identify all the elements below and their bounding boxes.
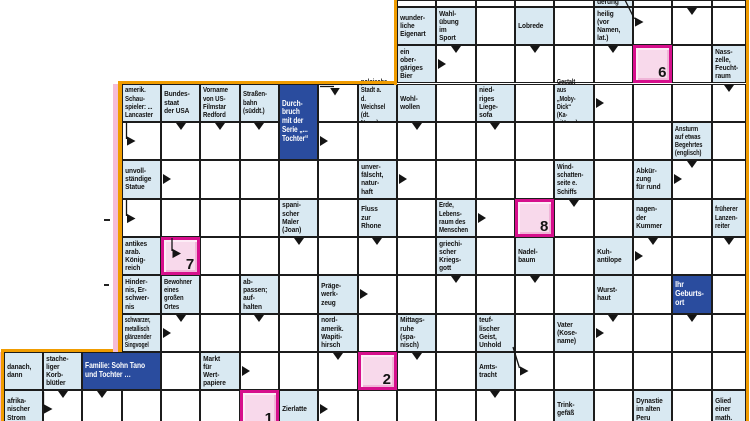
clue-cell-r11-c14: Trink- gefäß bbox=[554, 390, 593, 421]
clue-cell-r9-c12: teuf- lischer Geist, Unhold bbox=[476, 314, 515, 352]
right-arrow-icon bbox=[596, 98, 604, 108]
clue-text: derung bbox=[595, 0, 619, 6]
down-arrow-icon bbox=[412, 123, 422, 130]
clue-cell-r9-c8: nord- amerik. Wapiti- hirsch bbox=[318, 314, 357, 352]
answer-cell-r3-c13[interactable] bbox=[515, 84, 554, 122]
right-arrow-icon bbox=[674, 174, 682, 184]
answer-cell-r4-c10[interactable] bbox=[397, 122, 436, 160]
clue-cell-r6-c11: Erde, Lebens- raum des Menschen bbox=[436, 199, 475, 237]
down-arrow-icon bbox=[412, 353, 422, 360]
answer-cell-r2-c12[interactable] bbox=[476, 45, 515, 83]
right-arrow-icon bbox=[635, 251, 643, 261]
answer-cell-r5-c12[interactable] bbox=[476, 160, 515, 198]
right-arrow-icon bbox=[438, 59, 446, 69]
answer-cell-r3-c8[interactable] bbox=[318, 84, 357, 122]
down-arrow-icon bbox=[490, 123, 500, 130]
clue-cell-r8-c15: Wurst- haut bbox=[594, 275, 633, 313]
down-arrow-icon bbox=[648, 238, 658, 245]
clue-cell-r3-c3: amerik. Schau- spieler: ... Lancaster bbox=[122, 84, 161, 122]
down-arrow-icon bbox=[254, 123, 264, 130]
answer-cell-r6-c15[interactable] bbox=[594, 199, 633, 237]
pink-strip-lower-left bbox=[0, 352, 1, 421]
clue-cell-r11-c0: afrika- nischer Strom bbox=[4, 390, 43, 421]
answer-cell-r9-c16[interactable] bbox=[633, 314, 672, 352]
solution-cell-r2-c16[interactable]: 6 bbox=[633, 45, 672, 83]
right-arrow-icon bbox=[478, 213, 486, 223]
solution-cell-r6-c13[interactable]: 8 bbox=[515, 199, 554, 237]
clue-text: Mittags- ruhe (spa- nisch) bbox=[398, 316, 424, 349]
answer-cell-r10-c15[interactable] bbox=[594, 352, 633, 390]
clue-cell-r10-c12: Amts- tracht bbox=[476, 352, 515, 390]
clue-text: Straßen- bahn (süddt.) bbox=[241, 90, 267, 114]
clue-text: Dynastie im alten Peru bbox=[634, 397, 663, 421]
answer-cell-r11-c9[interactable] bbox=[358, 390, 397, 421]
down-arrow-icon bbox=[97, 391, 107, 398]
grid-outline-orange-lower-left bbox=[1, 349, 4, 421]
clue-cell-r2-c18: Nass- zelle, Feucht- raum bbox=[712, 45, 746, 83]
clue-cell-r3-c6: Straßen- bahn (süddt.) bbox=[240, 84, 279, 122]
down-arrow-icon bbox=[372, 238, 382, 245]
clue-text: Durch- bruch mit der Serie „... Tochter“ bbox=[280, 100, 308, 145]
clue-text: früherer Lanzen- reiter bbox=[713, 205, 738, 229]
grid-outline-orange-right bbox=[746, 0, 749, 421]
clue-text: Vater (Kose- name) bbox=[555, 321, 577, 345]
answer-cell-r9-c7[interactable] bbox=[279, 314, 318, 352]
clue-text: Markt für Wert- papiere bbox=[201, 355, 226, 388]
clue-cell-r10-c0: danach, dann bbox=[4, 352, 43, 390]
answer-cell-r5-c10[interactable] bbox=[397, 160, 436, 198]
answer-cell-r8-c9[interactable] bbox=[358, 275, 397, 313]
down-arrow-icon bbox=[490, 391, 500, 398]
answer-cell-r11-c13[interactable] bbox=[515, 390, 554, 421]
clue-cell-r9-c14: Vater (Kose- name) bbox=[554, 314, 593, 352]
stray-mark bbox=[104, 219, 110, 221]
solution-number: 7 bbox=[186, 257, 194, 272]
answer-cell-r7-c18[interactable] bbox=[712, 237, 746, 275]
grid-outline-orange-mid-left bbox=[118, 81, 121, 353]
answer-cell-r10-c7[interactable] bbox=[279, 352, 318, 390]
clue-cell-r3-c9: polnische Stadt a. d. Weichsel (dt. Name… bbox=[358, 84, 397, 122]
answer-cell-r4-c3[interactable] bbox=[122, 122, 161, 160]
clue-cell-r10-c5: Markt für Wert- papiere bbox=[200, 352, 239, 390]
grid-outline-orange-upper-left bbox=[394, 0, 397, 85]
clue-cell-r3-c10: Wohl- wollen bbox=[397, 84, 436, 122]
answer-cell-r4-c14[interactable] bbox=[554, 122, 593, 160]
answer-cell-r11-c17[interactable] bbox=[672, 390, 711, 421]
clue-text: Wind- schatten- seite e. Schiffs bbox=[555, 163, 583, 196]
answer-cell-r6-c8[interactable] bbox=[318, 199, 357, 237]
answer-cell-r11-c11[interactable] bbox=[436, 390, 475, 421]
answer-cell-r10-c17[interactable] bbox=[672, 352, 711, 390]
answer-cell-r4-c8[interactable] bbox=[318, 122, 357, 160]
clue-text: afrika- nischer Strom bbox=[5, 397, 30, 421]
down-arrow-icon bbox=[176, 315, 186, 322]
answer-cell-r2-c13[interactable] bbox=[515, 45, 554, 83]
answer-cell-r10-c11[interactable] bbox=[436, 352, 475, 390]
answer-cell-r10-c18[interactable] bbox=[712, 352, 746, 390]
answer-cell-r3-c16[interactable] bbox=[633, 84, 672, 122]
answer-cell-r4-c12[interactable] bbox=[476, 122, 515, 160]
answer-cell-r9-c17[interactable] bbox=[672, 314, 711, 352]
blue-clue-cell-r10-c2: Familie: Sohn Tano und Tochter … bbox=[82, 352, 161, 390]
answer-cell-r7-c6[interactable] bbox=[240, 237, 279, 275]
answer-cell-r4-c15[interactable] bbox=[594, 122, 633, 160]
answer-cell-r8-c12[interactable] bbox=[476, 275, 515, 313]
clue-text: Hinder- nis, Er- schwer- nis bbox=[123, 278, 149, 311]
answer-cell-r11-c8[interactable] bbox=[318, 390, 357, 421]
clue-cell-r7-c11: griechi- scher Kriegs- gott bbox=[436, 237, 475, 275]
solution-number: 8 bbox=[540, 219, 548, 234]
answer-cell-r6-c3[interactable] bbox=[122, 199, 161, 237]
down-arrow-icon bbox=[687, 161, 697, 168]
clue-cell-r10-c1: stache- liger Korb- blütler bbox=[43, 352, 82, 390]
answer-cell-r4-c18[interactable] bbox=[712, 122, 746, 160]
clue-cell-r5-c3: unvoll- ständige Statue bbox=[122, 160, 161, 198]
answer-cell-r9-c13[interactable] bbox=[515, 314, 554, 352]
down-arrow-icon bbox=[451, 276, 461, 283]
right-arrow-icon bbox=[163, 174, 171, 184]
stray-mark bbox=[104, 284, 110, 286]
answer-cell-r5-c18[interactable] bbox=[712, 160, 746, 198]
answer-cell-r8-c16[interactable] bbox=[633, 275, 672, 313]
answer-cell-r10-c8[interactable] bbox=[318, 352, 357, 390]
answer-cell-r0-c11[interactable] bbox=[436, 0, 475, 7]
down-arrow-icon bbox=[530, 276, 540, 283]
clue-cell-r9-c3: schwarzer, metallisch glänzender Singvog… bbox=[122, 314, 161, 352]
solution-number: 1 bbox=[265, 411, 273, 421]
answer-cell-r7-c14[interactable] bbox=[554, 237, 593, 275]
clue-text: Bewohner eines großen Ortes bbox=[162, 278, 192, 311]
clue-cell-r3-c14: Gestalt aus „Moby- Dick“ (Ka- pitän ...) bbox=[554, 84, 593, 122]
answer-cell-r7-c16[interactable] bbox=[633, 237, 672, 275]
clue-cell-r6-c18: früherer Lanzen- reiter bbox=[712, 199, 746, 237]
clue-text: Fluss zur Rhone bbox=[359, 205, 381, 229]
clue-cell-r6-c9: Fluss zur Rhone bbox=[358, 199, 397, 237]
clue-cell-r5-c16: Abkür- zung für rund bbox=[633, 160, 672, 198]
clue-text: nied- riges Liege- sofa bbox=[477, 86, 498, 119]
crossword-grid: derungwunder- liche EigenartWahl- übung … bbox=[0, 0, 750, 421]
answer-cell-r7-c10[interactable] bbox=[397, 237, 436, 275]
clue-cell-r1-c10: wunder- liche Eigenart bbox=[397, 7, 436, 45]
answer-cell-r7-c12[interactable] bbox=[476, 237, 515, 275]
clue-cell-r6-c16: nagen- der Kummer bbox=[633, 199, 672, 237]
answer-cell-r4-c16[interactable] bbox=[633, 122, 672, 160]
clue-text: ab- passen; auf- halten bbox=[241, 278, 267, 311]
answer-cell-r9-c9[interactable] bbox=[358, 314, 397, 352]
clue-cell-r1-c13: Lobrede bbox=[515, 7, 554, 45]
answer-cell-r6-c12[interactable] bbox=[476, 199, 515, 237]
answer-cell-r8-c18[interactable] bbox=[712, 275, 746, 313]
solution-cell-r10-c9[interactable]: 2 bbox=[358, 352, 397, 390]
right-arrow-icon bbox=[399, 174, 407, 184]
clue-cell-r7-c13: Nadel- baum bbox=[515, 237, 554, 275]
clue-cell-r11-c16: Dynastie im alten Peru bbox=[633, 390, 672, 421]
down-arrow-icon bbox=[333, 353, 343, 360]
answer-cell-r6-c4[interactable] bbox=[161, 199, 200, 237]
clue-text: unver- fälscht, natur- haft bbox=[359, 163, 383, 196]
clue-cell-r4-c17: Ansturm auf etwas Begehrtes (englisch) bbox=[672, 122, 711, 160]
clue-text: nagen- der Kummer bbox=[634, 205, 662, 229]
answer-cell-r4-c9[interactable] bbox=[358, 122, 397, 160]
down-arrow-icon bbox=[687, 8, 697, 15]
clue-text: unvoll- ständige Statue bbox=[123, 167, 151, 191]
answer-cell-r10-c13[interactable] bbox=[515, 352, 554, 390]
clue-text: Zierlatte bbox=[280, 405, 307, 413]
clue-text: teuf- lischer Geist, Unhold bbox=[477, 316, 501, 349]
answer-cell-r4-c13[interactable] bbox=[515, 122, 554, 160]
answer-cell-r4-c4[interactable] bbox=[161, 122, 200, 160]
down-arrow-icon bbox=[608, 315, 618, 322]
answer-cell-r7-c8[interactable] bbox=[318, 237, 357, 275]
clue-cell-r3-c5: Vorname von US- Filmstar Redford bbox=[200, 84, 239, 122]
answer-cell-r7-c9[interactable] bbox=[358, 237, 397, 275]
clue-text: Kuh- antilope bbox=[595, 248, 621, 264]
clue-cell-r6-c7: spani- scher Maler (Joan) bbox=[279, 199, 318, 237]
answer-cell-r5-c4[interactable] bbox=[161, 160, 200, 198]
clue-text: schwarzer, metallisch glänzender Singvog… bbox=[123, 316, 151, 349]
clue-cell-r1-c15: heilig (vor Namen, lat.) bbox=[594, 7, 633, 45]
grid-outline-orange-step-top bbox=[118, 81, 397, 84]
solution-cell-r7-c4[interactable]: 7 bbox=[161, 237, 200, 275]
solution-number: 2 bbox=[383, 372, 391, 387]
answer-cell-r8-c13[interactable] bbox=[515, 275, 554, 313]
pink-strip-left bbox=[113, 84, 118, 353]
answer-cell-r4-c5[interactable] bbox=[200, 122, 239, 160]
answer-cell-r6-c5[interactable] bbox=[200, 199, 239, 237]
answer-cell-r3-c11[interactable] bbox=[436, 84, 475, 122]
blue-clue-cell-r8-c17: Ihr Geburts- ort bbox=[672, 275, 711, 313]
clue-text: stache- liger Korb- blütler bbox=[44, 355, 68, 388]
clue-cell-r11-c18: Glied einer math. bbox=[712, 390, 746, 421]
down-arrow-icon bbox=[254, 315, 264, 322]
answer-cell-r9-c5[interactable] bbox=[200, 314, 239, 352]
answer-cell-r2-c17[interactable] bbox=[672, 45, 711, 83]
answer-cell-r3-c15[interactable] bbox=[594, 84, 633, 122]
answer-cell-r5-c5[interactable] bbox=[200, 160, 239, 198]
answer-cell-r0-c12[interactable] bbox=[476, 0, 515, 7]
clue-text: Abkür- zung für rund bbox=[634, 167, 660, 191]
down-arrow-icon bbox=[687, 315, 697, 322]
clue-text: ein ober- gäriges Bier bbox=[398, 48, 423, 81]
right-arrow-icon bbox=[320, 136, 328, 146]
down-arrow-icon bbox=[294, 238, 304, 245]
answer-cell-r10-c4[interactable] bbox=[161, 352, 200, 390]
clue-cell-r1-c11: Wahl- übung im Sport bbox=[436, 7, 475, 45]
answer-cell-r8-c11[interactable] bbox=[436, 275, 475, 313]
clue-cell-r8-c8: Präge- werk- zeug bbox=[318, 275, 357, 313]
down-arrow-icon bbox=[724, 85, 734, 92]
answer-cell-r11-c15[interactable] bbox=[594, 390, 633, 421]
answer-cell-r4-c6[interactable] bbox=[240, 122, 279, 160]
answer-cell-r0-c13[interactable] bbox=[515, 0, 554, 7]
answer-cell-r8-c7[interactable] bbox=[279, 275, 318, 313]
answer-cell-r6-c17[interactable] bbox=[672, 199, 711, 237]
clue-cell-r5-c14: Wind- schatten- seite e. Schiffs bbox=[554, 160, 593, 198]
clue-text: amerik. Schau- spieler: ... Lancaster bbox=[123, 86, 153, 119]
clue-text: danach, dann bbox=[5, 363, 31, 379]
answer-cell-r1-c12[interactable] bbox=[476, 7, 515, 45]
down-arrow-icon bbox=[724, 238, 734, 245]
clue-text: Nadel- baum bbox=[516, 248, 538, 264]
clue-text: Glied einer math. bbox=[713, 397, 732, 421]
clue-cell-r2-c10: ein ober- gäriges Bier bbox=[397, 45, 436, 83]
clue-text: Gestalt aus „Moby- Dick“ (Ka- pitän ...) bbox=[555, 78, 582, 127]
answer-cell-r1-c18[interactable] bbox=[712, 7, 746, 45]
clue-text: polnische Stadt a. d. Weichsel (dt. Name… bbox=[359, 78, 387, 127]
clue-text: Ansturm auf etwas Begehrtes (englisch) bbox=[673, 125, 702, 158]
clue-cell-r8-c3: Hinder- nis, Er- schwer- nis bbox=[122, 275, 161, 313]
answer-cell-r9-c18[interactable] bbox=[712, 314, 746, 352]
answer-cell-r8-c5[interactable] bbox=[200, 275, 239, 313]
right-arrow-icon bbox=[360, 289, 368, 299]
right-arrow-icon bbox=[596, 328, 604, 338]
answer-cell-r8-c10[interactable] bbox=[397, 275, 436, 313]
answer-cell-r11-c10[interactable] bbox=[397, 390, 436, 421]
answer-cell-r0-c14[interactable] bbox=[554, 0, 593, 7]
down-arrow-icon bbox=[530, 46, 540, 53]
clue-text: Vorname von US- Filmstar Redford bbox=[201, 86, 228, 119]
answer-cell-r0-c16[interactable] bbox=[633, 0, 672, 7]
clue-cell-r5-c9: unver- fälscht, natur- haft bbox=[358, 160, 397, 198]
clue-text: wunder- liche Eigenart bbox=[398, 14, 426, 38]
answer-cell-r9-c11[interactable] bbox=[436, 314, 475, 352]
answer-cell-r11-c5[interactable] bbox=[200, 390, 239, 421]
clue-text: nord- amerik. Wapiti- hirsch bbox=[319, 316, 343, 349]
answer-cell-r6-c14[interactable] bbox=[554, 199, 593, 237]
clue-text: Trink- gefäß bbox=[555, 401, 574, 417]
answer-cell-r6-c10[interactable] bbox=[397, 199, 436, 237]
answer-cell-r7-c5[interactable] bbox=[200, 237, 239, 275]
answer-cell-r10-c16[interactable] bbox=[633, 352, 672, 390]
clue-text: heilig (vor Namen, lat.) bbox=[595, 10, 620, 43]
clue-text: Bundes- staat der USA bbox=[162, 90, 190, 114]
answer-cell-r0-c10[interactable] bbox=[397, 0, 436, 7]
answer-cell-r5-c15[interactable] bbox=[594, 160, 633, 198]
answer-cell-r3-c18[interactable] bbox=[712, 84, 746, 122]
clue-cell-r7-c15: Kuh- antilope bbox=[594, 237, 633, 275]
clue-cell-r3-c12: nied- riges Liege- sofa bbox=[476, 84, 515, 122]
down-arrow-icon bbox=[58, 391, 68, 398]
answer-cell-r1-c17[interactable] bbox=[672, 7, 711, 45]
answer-cell-r4-c11[interactable] bbox=[436, 122, 475, 160]
answer-cell-r10-c10[interactable] bbox=[397, 352, 436, 390]
right-arrow-icon bbox=[163, 328, 171, 338]
answer-cell-r1-c16[interactable] bbox=[633, 7, 672, 45]
down-arrow-icon bbox=[451, 46, 461, 53]
clue-text: Wohl- wollen bbox=[398, 95, 420, 111]
clue-text: Nass- zelle, Feucht- raum bbox=[713, 48, 738, 81]
answer-cell-r2-c11[interactable] bbox=[436, 45, 475, 83]
answer-cell-r7-c7[interactable] bbox=[279, 237, 318, 275]
answer-cell-r0-c17[interactable] bbox=[672, 0, 711, 7]
clue-cell-r0-c15: derung bbox=[594, 0, 633, 7]
answer-cell-r0-c18[interactable] bbox=[712, 0, 746, 7]
answer-cell-r5-c17[interactable] bbox=[672, 160, 711, 198]
clue-cell-r8-c6: ab- passen; auf- halten bbox=[240, 275, 279, 313]
grid-outline-orange-step-low bbox=[1, 349, 121, 352]
clue-cell-r9-c10: Mittags- ruhe (spa- nisch) bbox=[397, 314, 436, 352]
clue-text: griechi- scher Kriegs- gott bbox=[437, 240, 462, 273]
answer-cell-r5-c8[interactable] bbox=[318, 160, 357, 198]
blue-clue-cell-r3-c7: Durch- bruch mit der Serie „... Tochter“ bbox=[279, 84, 318, 161]
clue-text: Lobrede bbox=[516, 22, 543, 30]
right-arrow-icon bbox=[320, 404, 328, 414]
down-arrow-icon bbox=[608, 46, 618, 53]
clue-text: antikes arab. König- reich bbox=[123, 240, 147, 273]
answer-cell-r5-c6[interactable] bbox=[240, 160, 279, 198]
clue-text: Wahl- übung im Sport bbox=[437, 10, 459, 43]
answer-cell-r2-c15[interactable] bbox=[594, 45, 633, 83]
clue-text: Ihr Geburts- ort bbox=[673, 281, 704, 308]
answer-cell-r10-c6[interactable] bbox=[240, 352, 279, 390]
answer-cell-r6-c6[interactable] bbox=[240, 199, 279, 237]
down-arrow-icon bbox=[176, 123, 186, 130]
answer-cell-r5-c11[interactable] bbox=[436, 160, 475, 198]
right-arrow-icon bbox=[242, 366, 250, 376]
clue-text: Familie: Sohn Tano und Tochter … bbox=[83, 362, 145, 380]
down-arrow-icon bbox=[569, 200, 579, 207]
answer-cell-r1-c14[interactable] bbox=[554, 7, 593, 45]
answer-cell-r11-c1[interactable] bbox=[43, 390, 82, 421]
clue-text: Amts- tracht bbox=[477, 363, 497, 379]
answer-cell-r5-c13[interactable] bbox=[515, 160, 554, 198]
clue-cell-r11-c7: Zierlatte bbox=[279, 390, 318, 421]
answer-cell-r9-c6[interactable] bbox=[240, 314, 279, 352]
clue-text: Erde, Lebens- raum des Menschen bbox=[437, 201, 468, 234]
answer-cell-r9-c4[interactable] bbox=[161, 314, 200, 352]
answer-cell-r10-c14[interactable] bbox=[554, 352, 593, 390]
down-arrow-icon bbox=[215, 123, 225, 130]
answer-cell-r9-c15[interactable] bbox=[594, 314, 633, 352]
answer-cell-r7-c17[interactable] bbox=[672, 237, 711, 275]
clue-cell-r3-c4: Bundes- staat der USA bbox=[161, 84, 200, 122]
clue-cell-r8-c4: Bewohner eines großen Ortes bbox=[161, 275, 200, 313]
clue-text: Wurst- haut bbox=[595, 286, 617, 302]
clue-cell-r7-c3: antikes arab. König- reich bbox=[122, 237, 161, 275]
answer-cell-r11-c3[interactable] bbox=[122, 390, 161, 421]
solution-number: 6 bbox=[658, 65, 666, 80]
solution-cell-r11-c6[interactable]: 1 bbox=[240, 390, 279, 421]
clue-text: spani- scher Maler (Joan) bbox=[280, 201, 301, 234]
answer-cell-r11-c2[interactable] bbox=[82, 390, 121, 421]
answer-cell-r5-c7[interactable] bbox=[279, 160, 318, 198]
answer-cell-r11-c4[interactable] bbox=[161, 390, 200, 421]
clue-text: Präge- werk- zeug bbox=[319, 282, 341, 306]
answer-cell-r8-c14[interactable] bbox=[554, 275, 593, 313]
answer-cell-r11-c12[interactable] bbox=[476, 390, 515, 421]
answer-cell-r3-c17[interactable] bbox=[672, 84, 711, 122]
